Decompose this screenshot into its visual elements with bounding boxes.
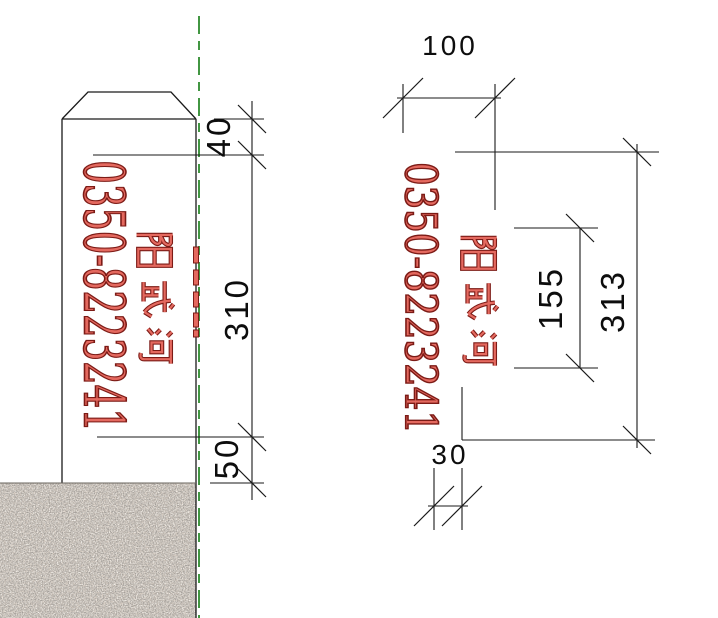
cjk-char-wu <box>457 278 501 322</box>
front-view-gap-dim <box>414 468 482 530</box>
cjk-char-wu <box>133 276 177 320</box>
cjk-char-yang <box>457 230 501 274</box>
cjk-char-he <box>133 324 177 368</box>
dim-30: 30 <box>420 435 480 475</box>
dim-100: 100 <box>405 16 495 76</box>
marker-post-drawing: 0350-8223241 阳武河 40 310 50 0350-8223241 … <box>0 0 718 618</box>
phone-number-text: 0350-8223241 <box>397 162 441 434</box>
cjk-char-he <box>457 326 501 370</box>
dim-313: 313 <box>567 256 657 346</box>
phone-number-text: 0350-8223241 <box>74 160 130 432</box>
cjk-char-yang <box>133 227 177 271</box>
dim-40: 40 <box>183 101 253 171</box>
